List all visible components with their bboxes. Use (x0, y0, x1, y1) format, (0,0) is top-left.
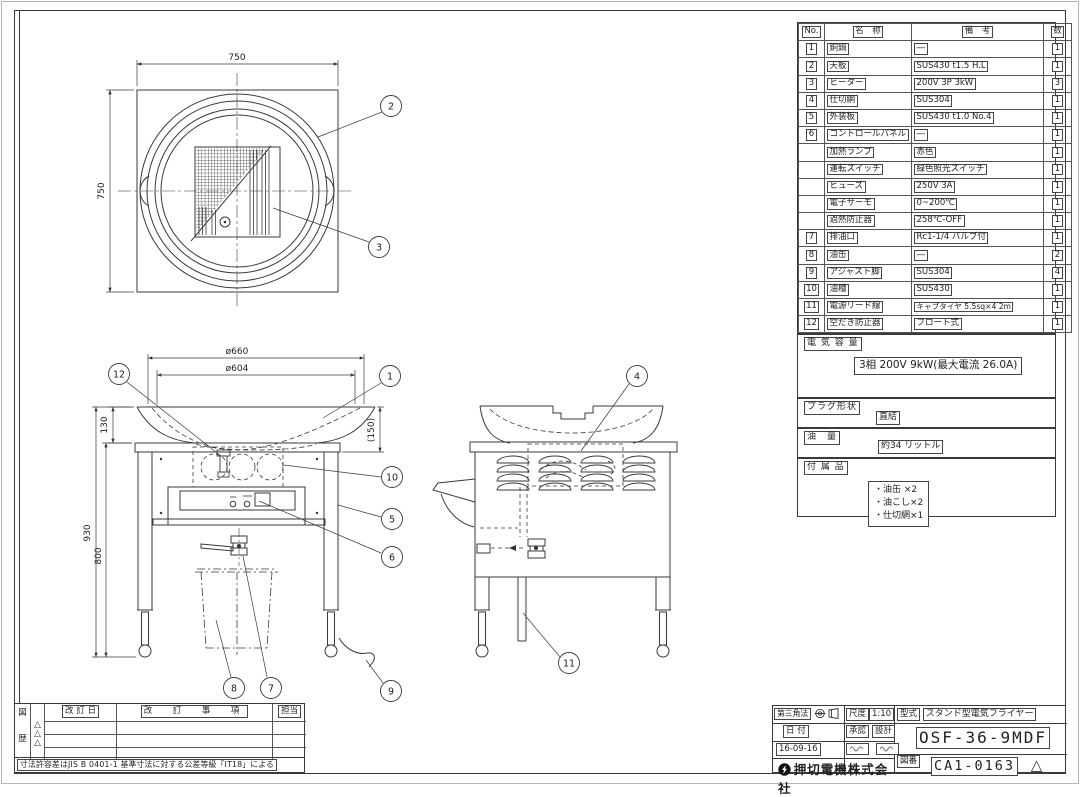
revision-charge-column: 担当 (273, 704, 306, 759)
col-header-remark: 備 考 (962, 26, 993, 38)
part-qty: 1 (1052, 198, 1062, 210)
oil-volume-label: 油 量 (804, 431, 840, 444)
part-name: 排油口 (827, 232, 858, 244)
frame-rail (153, 519, 325, 525)
date-label-cell: 日 付 (783, 725, 809, 738)
revision-triangle: △ (1031, 756, 1043, 774)
revision-item-header: 改 訂 事 項 (141, 705, 249, 718)
part-name: ヒーター (827, 78, 866, 90)
part-no: 4 (806, 95, 816, 107)
tolerance-note-bar: 寸法許容差はJIS B 0401-1 基準寸法に対する公差等級「IT18」による (15, 757, 304, 772)
part-remark: 0~200℃ (914, 198, 957, 210)
table-row: 7排油口Rc1-1/4 バルブ付1 (799, 230, 1072, 247)
oil-volume-section: 油 量 約34 リットル (798, 427, 1055, 457)
drain-valve (201, 536, 247, 555)
mesh-hatch (196, 148, 266, 232)
dwg-number: CA1-0163 (931, 757, 1018, 776)
part-remark: キャブタイヤ 5.5sq×4 2m (914, 302, 1013, 313)
part-qty: 1 (1052, 318, 1062, 330)
dim-750-v-label: 750 (97, 182, 107, 199)
part-qty: 1 (1052, 147, 1062, 159)
part-name: 外装板 (827, 112, 858, 124)
dim-800-label: 800 (94, 547, 104, 564)
balloon-6-label: 6 (389, 553, 395, 564)
parts-table: No. 名 称 備 考 数 1銅鍋―1 2天板SUS430 t1.5 H.L1 … (798, 23, 1072, 333)
part-remark: SUS430 (914, 284, 952, 296)
oil-can-hidden (195, 569, 278, 655)
part-no: 12 (804, 318, 820, 330)
table-row: 12空だき防止器フロート式1 (799, 316, 1072, 333)
part-qty: 1 (1052, 215, 1062, 227)
tolerance-note: 寸法許容差はJIS B 0401-1 基準寸法に対する公差等級「IT18」による (17, 759, 277, 771)
drain-spout (433, 479, 475, 527)
balloon-12-label: 12 (113, 370, 125, 381)
model-cell: OSF-36-9MDF (901, 727, 1065, 749)
company-name: 押切電機株式会社 (778, 762, 888, 796)
parts-panel: No. 名 称 備 考 数 1銅鍋―1 2天板SUS430 t1.5 H.L1 … (797, 22, 1056, 517)
date-label: 日 付 (783, 725, 809, 738)
part-remark: 200V 3P 3kW (914, 78, 976, 90)
part-remark: SUS430 t1.5 H.L (914, 61, 988, 73)
dwg-label-cell: 図番 (897, 755, 920, 768)
balloon-2-label: 2 (388, 102, 394, 113)
table-row: 電子サーモ0~200℃1 (799, 195, 1072, 212)
stamps-cell (846, 743, 899, 756)
part-no: 10 (804, 284, 820, 296)
part-qty: 1 (1052, 43, 1062, 55)
oil-volume-value: 約34 リットル (878, 440, 943, 453)
accessory-item: ・油こし×2 (874, 497, 923, 510)
approve-design-cell: 承認設計 (846, 725, 895, 738)
part-remark: 緑色照光スイッチ (914, 164, 987, 176)
part-remark: SUS304 (914, 267, 952, 279)
part-name: 運転スイッチ (827, 164, 883, 176)
part-name: 天板 (827, 61, 849, 73)
scale-cell: 尺度1:10 (846, 708, 894, 721)
part-qty: 1 (1052, 61, 1062, 73)
power-cord (339, 638, 374, 667)
part-name: アジャスト脚 (827, 267, 882, 279)
balloon-4-label: 4 (634, 372, 640, 383)
title-block: 第三角法 尺度1:10 型式 スタンド型電気フライヤー 日 付 承認設計 OSF… (772, 705, 1066, 773)
dim-130-label: 130 (100, 416, 110, 433)
part-qty: 2 (1052, 250, 1062, 262)
table-row: 4仕切網SUS3041 (799, 92, 1072, 109)
revision-mark-column: △ △ △ (31, 704, 45, 759)
dim-750-h-label: 750 (228, 53, 245, 63)
table-row: 3ヒーター200V 3P 3kW3 (799, 75, 1072, 92)
part-name: コントロールパネル (827, 129, 909, 141)
part-name: 油槽 (827, 284, 849, 296)
balloon-11-label: 11 (563, 659, 575, 670)
company-logo-icon (778, 763, 791, 776)
part-remark: 赤色 (914, 147, 936, 159)
dim-150-label: (150) (367, 418, 377, 442)
table-row: 8油缶―2 (799, 247, 1072, 264)
balloon-5-label: 5 (389, 515, 395, 526)
table-row: ヒューズ250V 3A1 (799, 178, 1072, 195)
balloon-6 (259, 501, 403, 568)
part-qty: 3 (1052, 78, 1062, 90)
part-remark: Rc1-1/4 バルブ付 (914, 232, 988, 244)
part-remark: フロート式 (914, 318, 962, 330)
accessory-item: ・仕切網×1 (874, 510, 923, 523)
table-row: 過熱防止器258℃-OFF1 (799, 213, 1072, 230)
part-no: 7 (806, 232, 816, 244)
part-qty: 1 (1052, 164, 1062, 176)
dwg-no-label: 図番 (897, 755, 920, 768)
electric-capacity-section: 電 気 容 量 3相 200V 9kW(最大電流 26.0A) (798, 333, 1055, 397)
dim-930 (92, 407, 136, 657)
revision-table: 図 歴 △ △ △ 改 訂 日 改 訂 事 項 担当 寸法許容差はJIS B 0… (14, 703, 305, 773)
third-angle-projection-icon (814, 707, 840, 720)
balloon-3-label: 3 (376, 243, 382, 254)
table-row: 11電源リード線キャブタイヤ 5.5sq×4 2m1 (799, 299, 1072, 316)
part-remark: SUS304 (914, 95, 952, 107)
revision-side-label-bottom: 歴 (15, 732, 30, 744)
part-no: 9 (806, 267, 816, 279)
part-remark: ― (914, 129, 928, 141)
col-header-no: No. (802, 26, 821, 38)
accessories-section: 付 属 品 ・油缶 ×2 ・油こし×2 ・仕切網×1 (798, 457, 1055, 531)
balloon-10-label: 10 (386, 473, 398, 484)
part-no: 1 (806, 43, 816, 55)
piping-hidden (480, 487, 527, 548)
type-value: スタンド型電気フライヤー (923, 708, 1037, 721)
part-name: 過熱防止器 (827, 215, 875, 227)
table-row: 5外装板SUS430 t1.0 No.41 (799, 109, 1072, 126)
revision-charge-header: 担当 (278, 705, 301, 718)
date-value-cell: 16-09-16 (776, 743, 821, 756)
part-name: 空だき防止器 (827, 318, 883, 330)
table-row: 10油槽SUS4301 (799, 281, 1072, 298)
dim-604-label: ø604 (226, 364, 249, 374)
part-qty: 1 (1052, 181, 1062, 193)
valve-side (528, 539, 545, 558)
dim-750-horizontal (137, 60, 338, 86)
balloon-8-label: 8 (231, 684, 237, 695)
part-remark: ― (914, 43, 928, 55)
revision-date-column: 改 訂 日 (45, 704, 117, 759)
balloon-10 (284, 465, 403, 488)
part-remark: ― (914, 250, 928, 262)
louver-vents (497, 456, 655, 490)
col-header-name: 名 称 (853, 26, 884, 38)
balloon-9-label: 9 (388, 687, 394, 698)
part-name: ヒューズ (827, 181, 866, 193)
part-remark: 258℃-OFF (914, 215, 965, 227)
dim-660 (148, 354, 364, 404)
type-label: 型式 (897, 708, 920, 721)
revision-mark: △ (31, 739, 44, 748)
revision-item-column: 改 訂 事 項 (117, 704, 273, 759)
part-qty: 1 (1052, 112, 1062, 124)
heater-hidden (528, 444, 623, 486)
date-value: 16-09-16 (776, 743, 821, 756)
electric-capacity-label: 電 気 容 量 (804, 337, 862, 350)
projection-cell: 第三角法 (774, 707, 844, 723)
drawing-sheet: { "sheet": { "tolerance_note": "寸法許容差はJI… (0, 0, 1080, 785)
plug-shape-value: 直結 (876, 411, 900, 424)
approve-label: 承認 (846, 725, 869, 738)
scale-value: 1:10 (869, 708, 894, 721)
part-remark: SUS430 t1.0 No.4 (914, 112, 994, 124)
type-cell: 型式 スタンド型電気フライヤー (897, 708, 1036, 721)
design-label: 設計 (872, 725, 895, 738)
part-name: 加熱ランプ (827, 147, 874, 159)
part-no: 8 (806, 250, 816, 262)
electric-capacity-value: 3相 200V 9kW(最大電流 26.0A) (854, 357, 1022, 374)
part-no: 5 (806, 112, 816, 124)
balloon-9 (366, 660, 402, 702)
accessories-label: 付 属 品 (804, 461, 848, 474)
part-qty: 4 (1052, 267, 1062, 279)
part-name: 電源リード線 (827, 301, 883, 313)
plug-shape-label: プラグ形状 (804, 401, 860, 414)
dim-660-label: ø660 (226, 347, 249, 357)
top-view: 750 750 2 3 (97, 53, 402, 308)
table-row: 9アジャスト脚SUS3044 (799, 264, 1072, 281)
part-qty: 1 (1052, 95, 1062, 107)
table-row: 6コントロールパネル―1 (799, 127, 1072, 144)
dim-800 (102, 443, 132, 657)
oil-tank-hidden (193, 447, 283, 487)
revision-date-header: 改 訂 日 (62, 705, 99, 718)
revision-side-label: 図 歴 (15, 704, 31, 759)
design-stamp (876, 743, 899, 755)
part-name: 銅鍋 (827, 43, 849, 55)
balloon-7 (243, 556, 282, 699)
part-name: 仕切網 (827, 95, 858, 107)
approval-stamp (846, 743, 869, 755)
company-cell: 押切電機株式会社 (778, 759, 893, 797)
bowl-handle (553, 406, 593, 419)
balloon-1-label: 1 (387, 372, 393, 383)
projection-label: 第三角法 (774, 708, 811, 720)
dim-930-label: 930 (83, 524, 93, 541)
dwg-no-cell: CA1-0163 △ (931, 757, 1042, 776)
part-no: 11 (804, 301, 820, 313)
table-row: 1銅鍋―1 (799, 41, 1072, 58)
table-row: 加熱ランプ赤色1 (799, 144, 1072, 161)
part-no: 3 (806, 78, 816, 90)
scale-label: 尺度 (846, 708, 869, 721)
balloon-12 (109, 364, 222, 457)
part-qty: 1 (1052, 232, 1062, 244)
revision-side-label-top: 図 (15, 706, 30, 718)
part-name: 油缶 (827, 250, 849, 262)
front-view: ø660 ø604 130 (150) 930 800 12 1 (83, 347, 403, 702)
part-qty: 1 (1052, 129, 1062, 141)
parts-header-row: No. 名 称 備 考 数 (799, 24, 1072, 41)
dim-604 (157, 370, 355, 404)
model-number: OSF-36-9MDF (916, 727, 1050, 749)
balloon-7-label: 7 (268, 684, 274, 695)
part-qty: 1 (1052, 284, 1062, 296)
legs-side (474, 577, 671, 657)
dim-130 (108, 407, 132, 443)
part-no: 6 (806, 129, 816, 141)
table-row: 2天板SUS430 t1.5 H.L1 (799, 58, 1072, 75)
side-view: 4 11 (433, 366, 677, 674)
accessories-list: ・油缶 ×2 ・油こし×2 ・仕切網×1 (868, 481, 929, 526)
part-qty: 1 (1052, 301, 1062, 313)
part-name: 電子サーモ (827, 198, 875, 210)
table-row: 運転スイッチ緑色照光スイッチ1 (799, 161, 1072, 178)
part-no: 2 (806, 61, 816, 73)
part-remark: 250V 3A (914, 181, 955, 193)
accessory-item: ・油缶 ×2 (874, 484, 923, 497)
col-header-qty: 数 (1051, 26, 1065, 38)
plug-section: プラグ形状 直結 (798, 397, 1055, 427)
